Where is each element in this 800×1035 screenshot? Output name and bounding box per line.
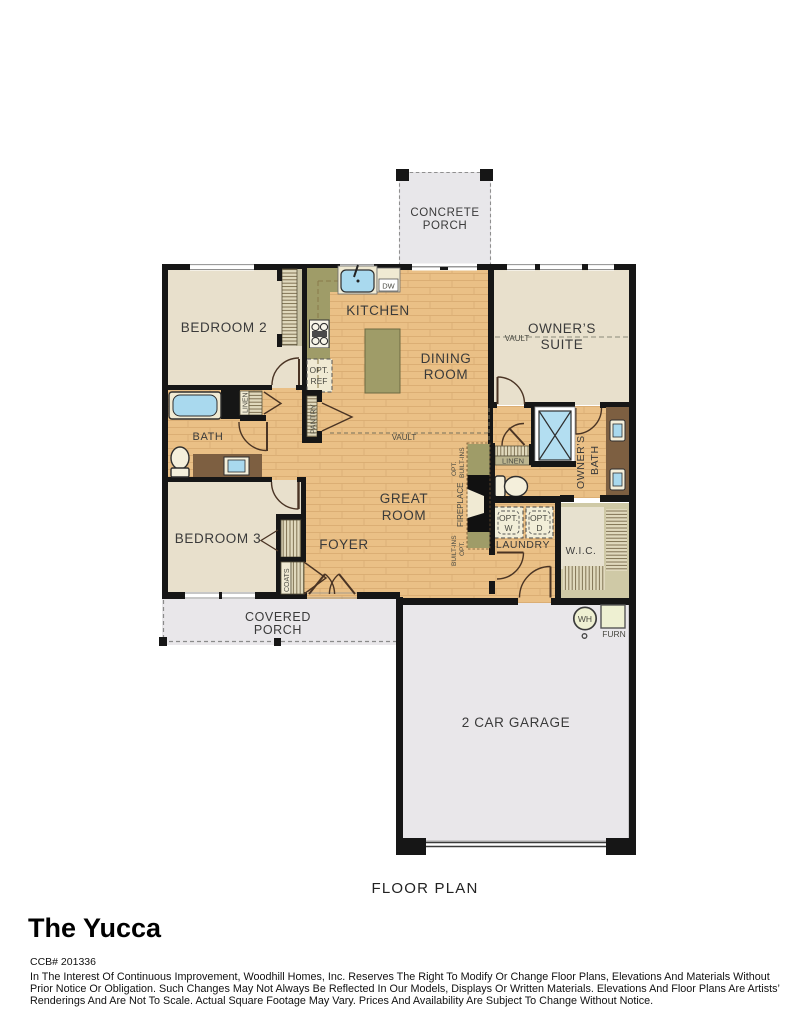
svg-text:GREAT: GREAT	[380, 491, 429, 506]
svg-text:FURN: FURN	[602, 629, 626, 639]
svg-text:KITCHEN: KITCHEN	[346, 303, 409, 318]
svg-text:LINEN: LINEN	[502, 457, 524, 466]
svg-text:OWNER’S: OWNER’S	[575, 435, 587, 489]
svg-text:VAULT: VAULT	[392, 433, 417, 442]
svg-text:COVERED: COVERED	[245, 610, 311, 624]
svg-text:REF: REF	[311, 376, 328, 386]
svg-text:OPT.: OPT.	[530, 513, 549, 523]
svg-text:BEDROOM 3: BEDROOM 3	[175, 531, 261, 546]
svg-text:OWNER’S: OWNER’S	[528, 321, 596, 336]
svg-text:LINEN: LINEN	[243, 392, 250, 413]
svg-text:W.I.C.: W.I.C.	[566, 546, 597, 557]
svg-text:ROOM: ROOM	[424, 367, 468, 382]
svg-text:2 CAR GARAGE: 2 CAR GARAGE	[462, 715, 570, 730]
svg-text:BUILT-INS: BUILT-INS	[459, 447, 466, 478]
svg-text:PANTRY: PANTRY	[309, 404, 318, 434]
svg-text:DINING: DINING	[421, 351, 472, 366]
svg-text:FOYER: FOYER	[319, 537, 369, 552]
svg-text:PORCH: PORCH	[254, 623, 302, 637]
svg-text:OPT.: OPT.	[310, 365, 329, 375]
svg-text:W: W	[504, 523, 512, 533]
svg-text:D: D	[536, 523, 542, 533]
svg-text:SUITE: SUITE	[541, 337, 584, 352]
svg-text:COATS: COATS	[284, 568, 291, 592]
svg-text:WH: WH	[578, 614, 592, 624]
svg-text:CONCRETE: CONCRETE	[410, 207, 479, 219]
svg-text:FIREPLACE: FIREPLACE	[456, 483, 465, 527]
svg-text:OPT.: OPT.	[499, 513, 518, 523]
svg-text:ROOM: ROOM	[382, 508, 426, 523]
svg-text:LAUNDRY: LAUNDRY	[496, 539, 550, 551]
svg-text:BATH: BATH	[193, 431, 224, 443]
svg-text:VAULT: VAULT	[505, 334, 530, 343]
svg-text:BATH: BATH	[589, 445, 601, 475]
svg-text:DW: DW	[382, 282, 395, 291]
svg-text:OPT.: OPT.	[451, 461, 458, 476]
svg-text:OPT.: OPT.	[459, 541, 466, 556]
svg-text:BUILT-INS: BUILT-INS	[451, 535, 458, 566]
svg-text:PORCH: PORCH	[423, 220, 468, 232]
svg-text:BEDROOM 2: BEDROOM 2	[181, 320, 267, 335]
